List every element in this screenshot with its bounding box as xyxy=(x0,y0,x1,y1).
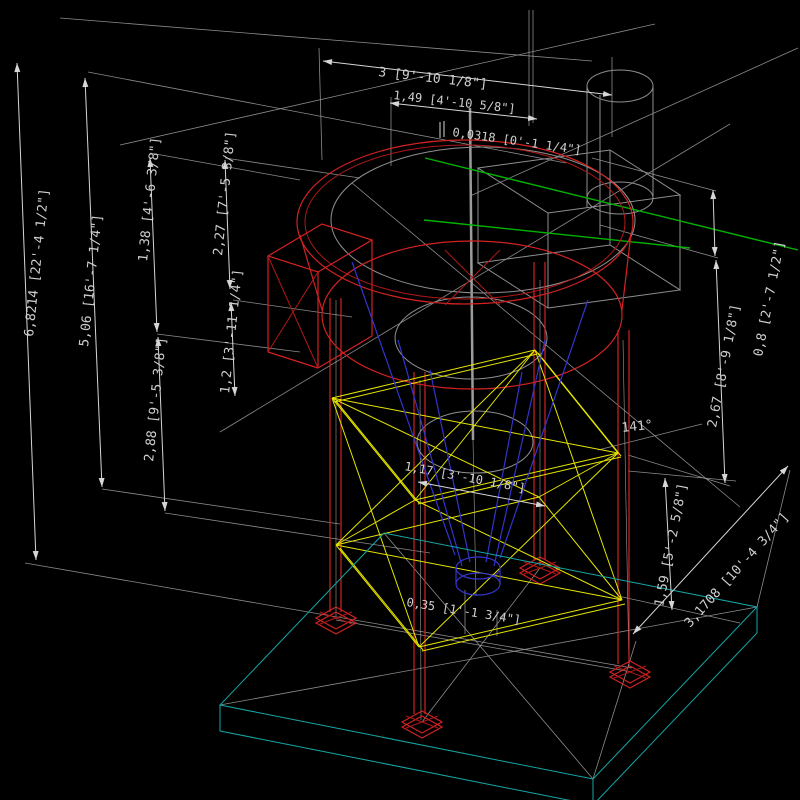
dim-label-left-d: 1,2 [3'-11 1/4"] xyxy=(218,268,246,394)
angle-label: 141° xyxy=(621,418,654,436)
dim-label-top-sub: 1,49 [4'-10 5/8"] xyxy=(393,88,517,116)
green-lines xyxy=(424,158,798,250)
cad-drawing: 3 [9'-10 1/8"] 1,49 [4'-10 5/8"] 0,0318 … xyxy=(0,0,800,800)
red-side-box xyxy=(268,224,372,368)
dim-label-left-total: 6,8214 [22'-4 1/2"] xyxy=(22,188,52,337)
dim-label-mid-b: 0,35 [1'-1 3/4"] xyxy=(406,595,522,627)
gray-wireframe xyxy=(331,70,680,473)
base-plate xyxy=(402,711,442,738)
hopper-blue xyxy=(352,262,588,595)
hopper-outlet-bottom xyxy=(456,573,500,595)
dim-label-left-b: 2,27 [7'-5 3/8"] xyxy=(211,130,239,256)
construction-lines xyxy=(25,10,798,779)
dim-label-left-c: 2,88 [9'-5 3/8"] xyxy=(142,336,170,462)
vent-cylinder-bottom xyxy=(587,182,653,214)
support-legs-red xyxy=(330,262,629,714)
base-pad-cyan xyxy=(220,533,757,800)
dim-label-right-b: 2,67 [8'-9 1/8"] xyxy=(705,303,744,429)
dim-label-mid-a: 1,17 [3'-10 1/8"] xyxy=(403,459,526,495)
dim-label-right-a: 0,8 [2'-7 1/2"] xyxy=(751,240,788,358)
dim-label-right-d: 3,1708 [10'-4 3/4"] xyxy=(682,510,793,631)
tank-roof-inner-ellipse xyxy=(331,147,635,293)
vent-cylinder-top xyxy=(587,70,653,102)
dim-label-right-c: 1,59 [5'-2 5/8"] xyxy=(652,482,691,608)
dim-label-left-upper: 5,06 [16'-7 1/4"] xyxy=(77,214,106,348)
dim-label-left-a: 1,38 [4'-6 3/8"] xyxy=(136,136,164,262)
center-mast xyxy=(470,108,473,440)
tank-red xyxy=(297,140,633,389)
cad-canvas[interactable]: 3 [9'-10 1/8"] 1,49 [4'-10 5/8"] 0,0318 … xyxy=(0,0,800,800)
